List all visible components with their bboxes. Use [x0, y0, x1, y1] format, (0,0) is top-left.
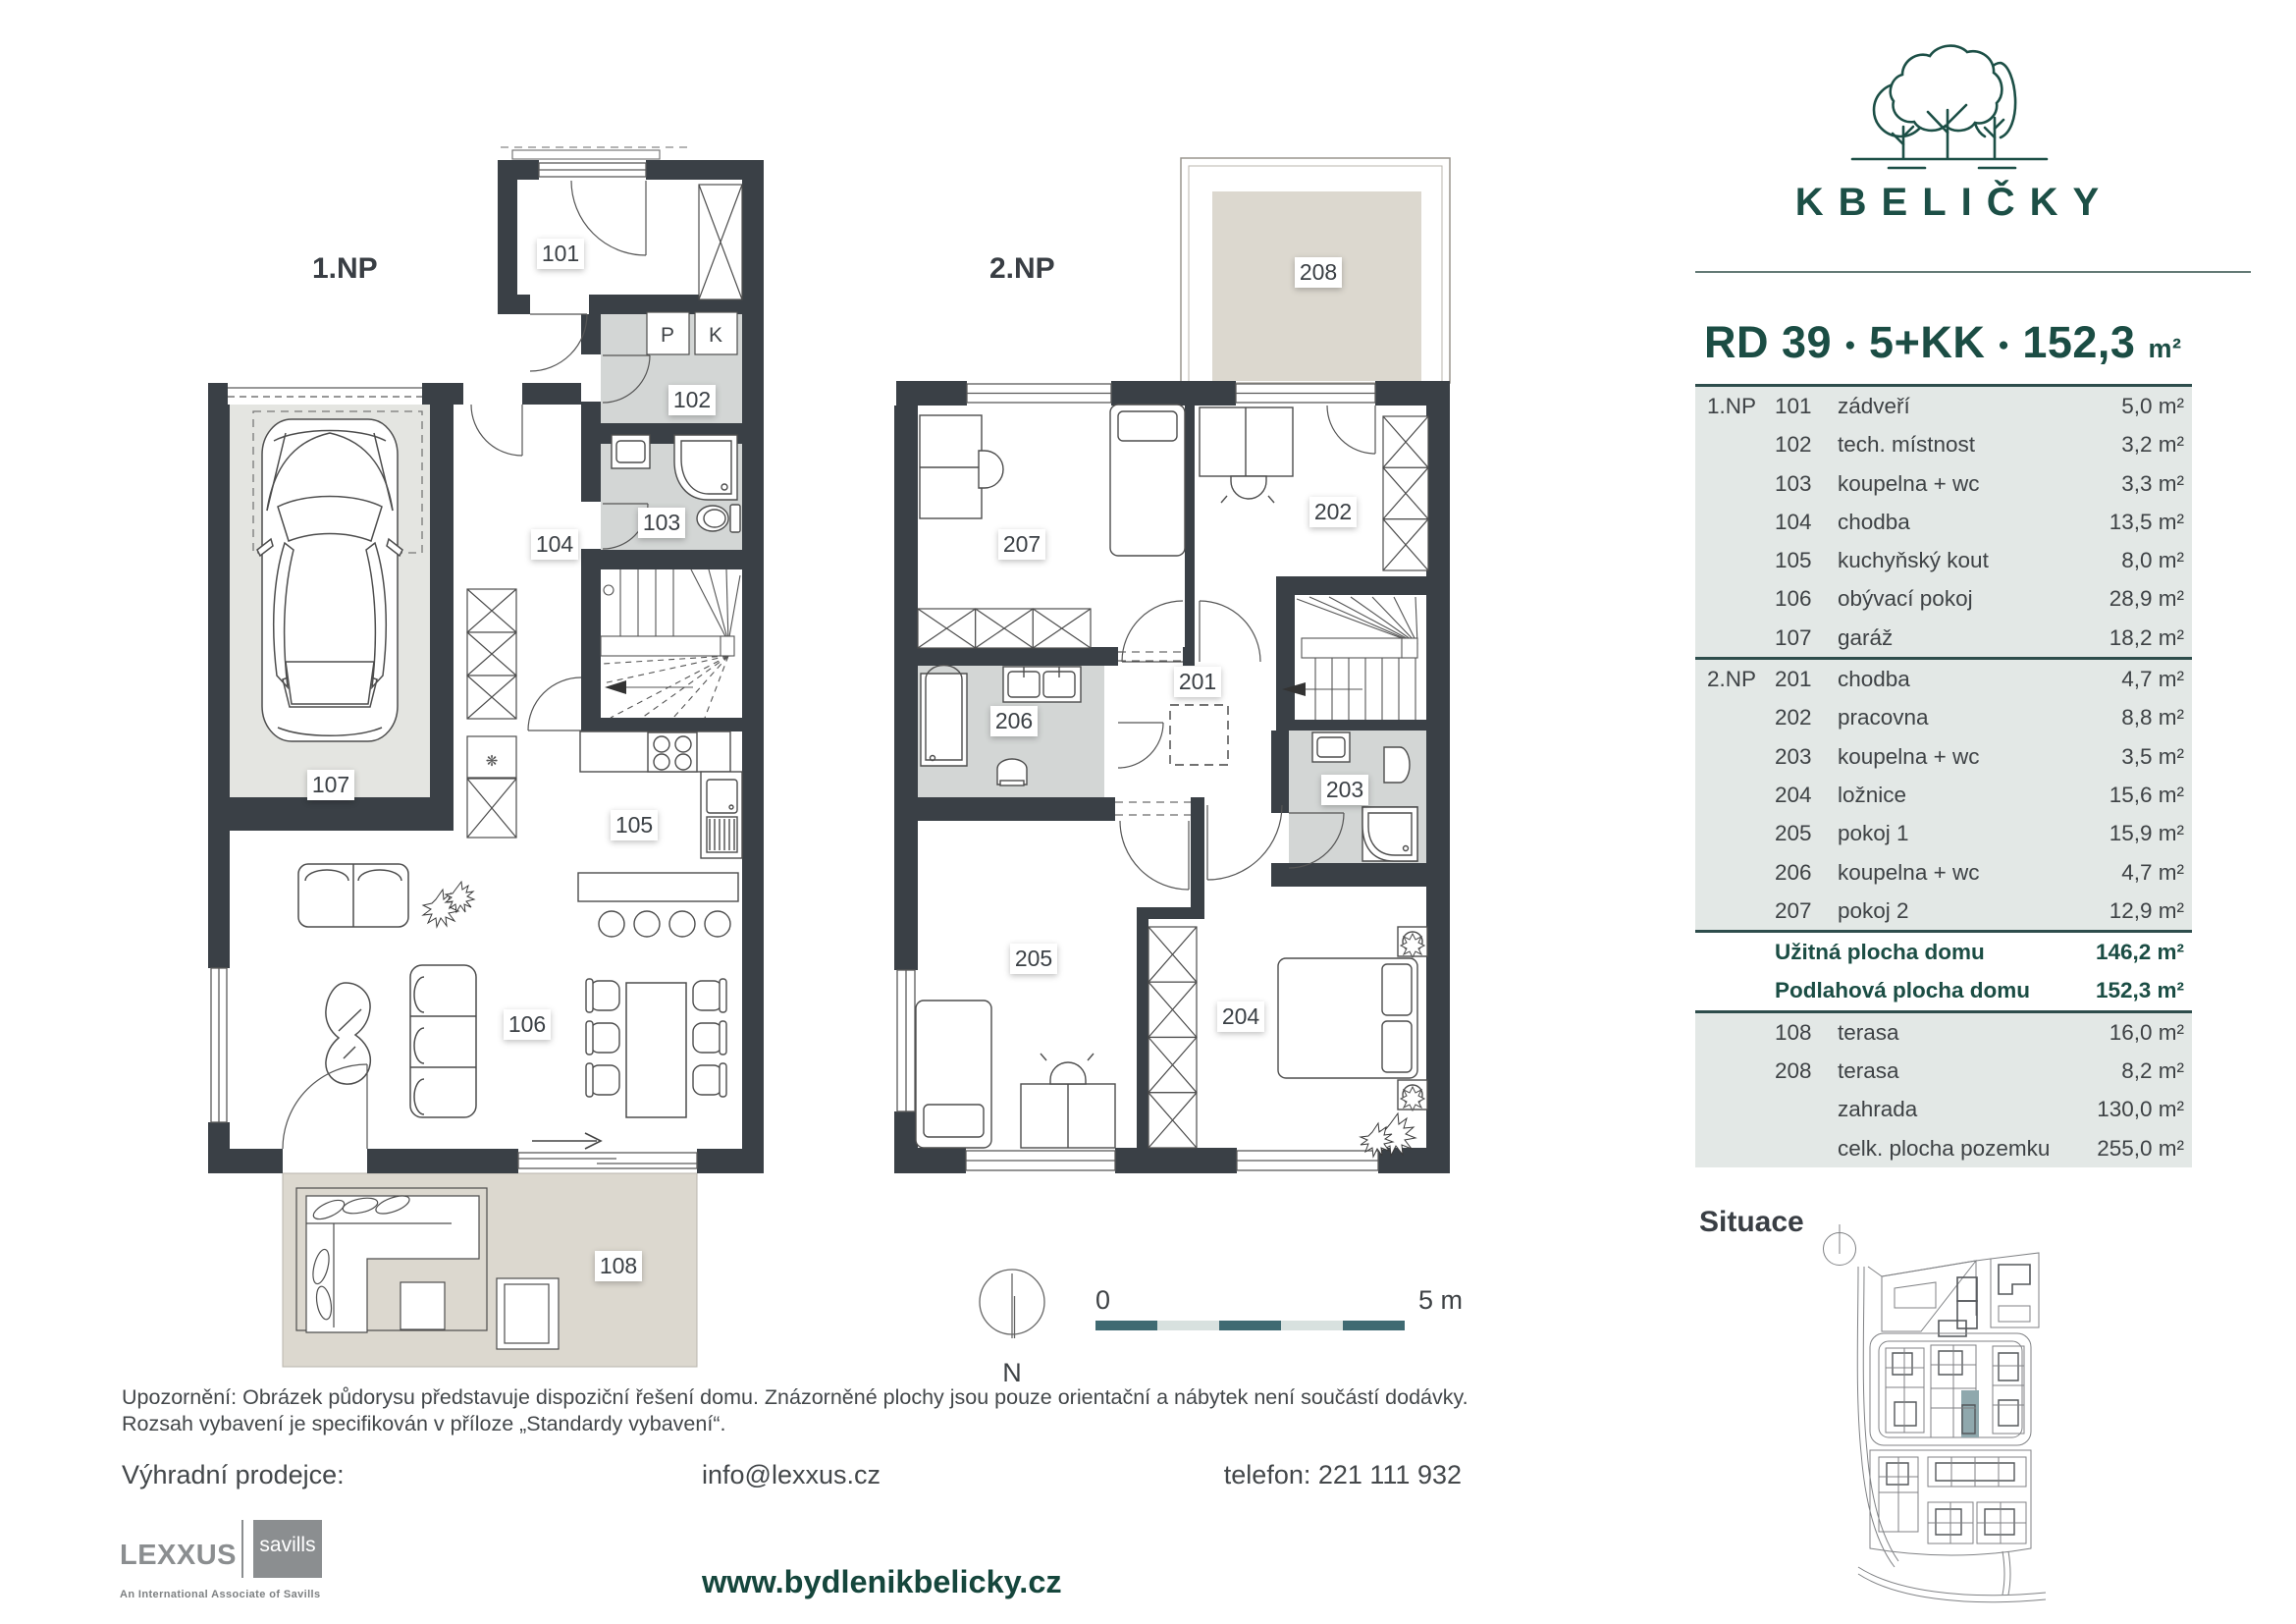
svg-text:KBELIČKY: KBELIČKY — [1795, 179, 2113, 224]
svg-text:K: K — [709, 324, 722, 347]
svg-text:N: N — [1002, 1358, 1022, 1387]
svg-text:5 m: 5 m — [1418, 1285, 1463, 1315]
svg-text:❋: ❋ — [486, 753, 499, 770]
svg-text:0: 0 — [1095, 1285, 1110, 1315]
svg-text:P: P — [661, 324, 674, 347]
